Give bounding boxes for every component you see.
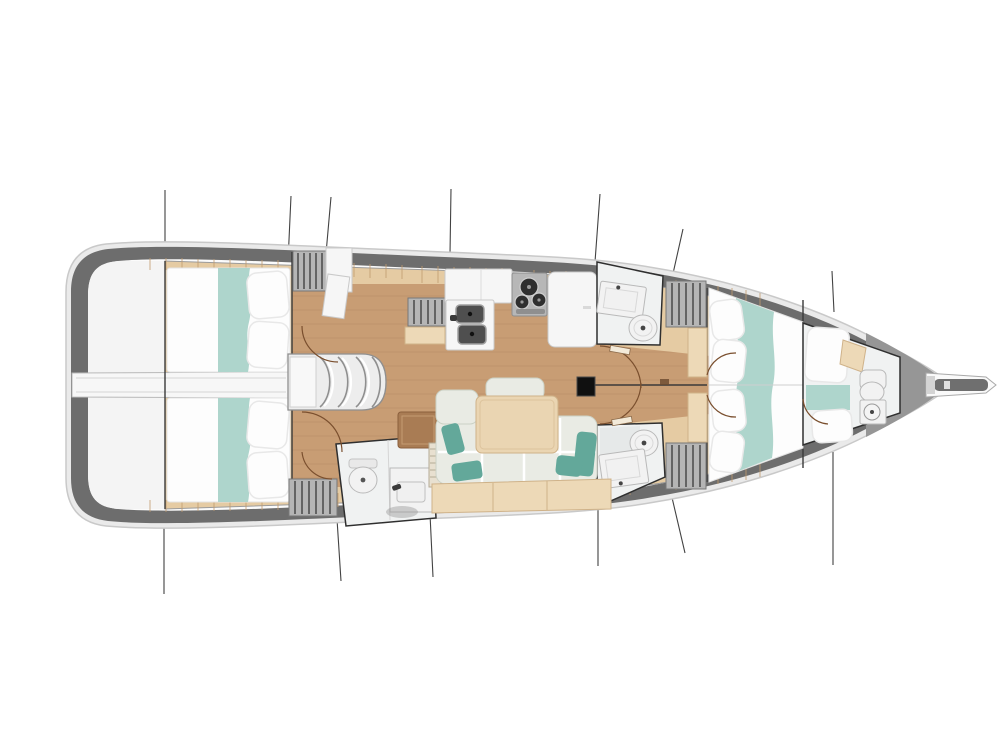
salon-table xyxy=(476,396,558,453)
burner-cap xyxy=(527,285,531,289)
aft-cabin-port xyxy=(167,268,290,372)
pillow xyxy=(246,400,290,449)
washbasin xyxy=(605,456,640,481)
forepeak-blanket xyxy=(806,385,850,410)
galley-shelf xyxy=(405,327,445,344)
anchor-roller-gap xyxy=(944,381,950,389)
mast xyxy=(577,377,595,396)
berth-blanket xyxy=(218,268,251,372)
bowsprit xyxy=(926,373,996,397)
washbasin xyxy=(603,288,637,312)
toilet-flush xyxy=(361,478,366,483)
berth-blanket xyxy=(218,398,251,502)
forepeak-toilet xyxy=(860,382,884,402)
locker-band xyxy=(432,479,611,513)
door-stop xyxy=(660,379,669,385)
galley-counter-top xyxy=(445,269,512,303)
pillow xyxy=(710,388,747,433)
pillow xyxy=(246,270,290,319)
dresser-bow-top xyxy=(688,328,707,377)
toilet-flush xyxy=(642,441,647,446)
aft-head xyxy=(336,436,436,526)
settee-back-left xyxy=(436,390,478,424)
dresser-bow-bottom xyxy=(688,393,707,442)
pillow xyxy=(708,430,745,474)
engine-compartment-strip xyxy=(72,372,290,398)
aft-cabin-starboard xyxy=(167,398,290,502)
pillow xyxy=(246,321,289,370)
engine-strip xyxy=(72,372,290,398)
sink-drain xyxy=(470,332,474,336)
toilet-flush xyxy=(641,326,646,331)
yacht-floor-plan xyxy=(0,0,1000,750)
sink-drain xyxy=(468,312,472,316)
galley-fridge-counter xyxy=(548,272,597,347)
steps-landing xyxy=(290,357,316,407)
fridge-handle xyxy=(583,306,591,309)
teal-cushion xyxy=(555,455,583,478)
pillow xyxy=(708,298,745,342)
bowsprit-base xyxy=(927,376,935,394)
stove-knobs xyxy=(516,309,545,314)
burner-cap xyxy=(520,300,523,303)
washbasin xyxy=(397,482,425,502)
anchor-roller xyxy=(934,379,988,391)
head-starboard-top xyxy=(597,262,663,345)
basin-shadow xyxy=(386,506,418,518)
forepeak-basin-drain xyxy=(870,410,874,414)
yacht-floor-plan-page xyxy=(0,0,1000,750)
galley-faucet xyxy=(450,315,457,321)
forepeak-pillow xyxy=(811,409,853,444)
burner-cap xyxy=(537,298,540,301)
pillow xyxy=(246,451,289,500)
